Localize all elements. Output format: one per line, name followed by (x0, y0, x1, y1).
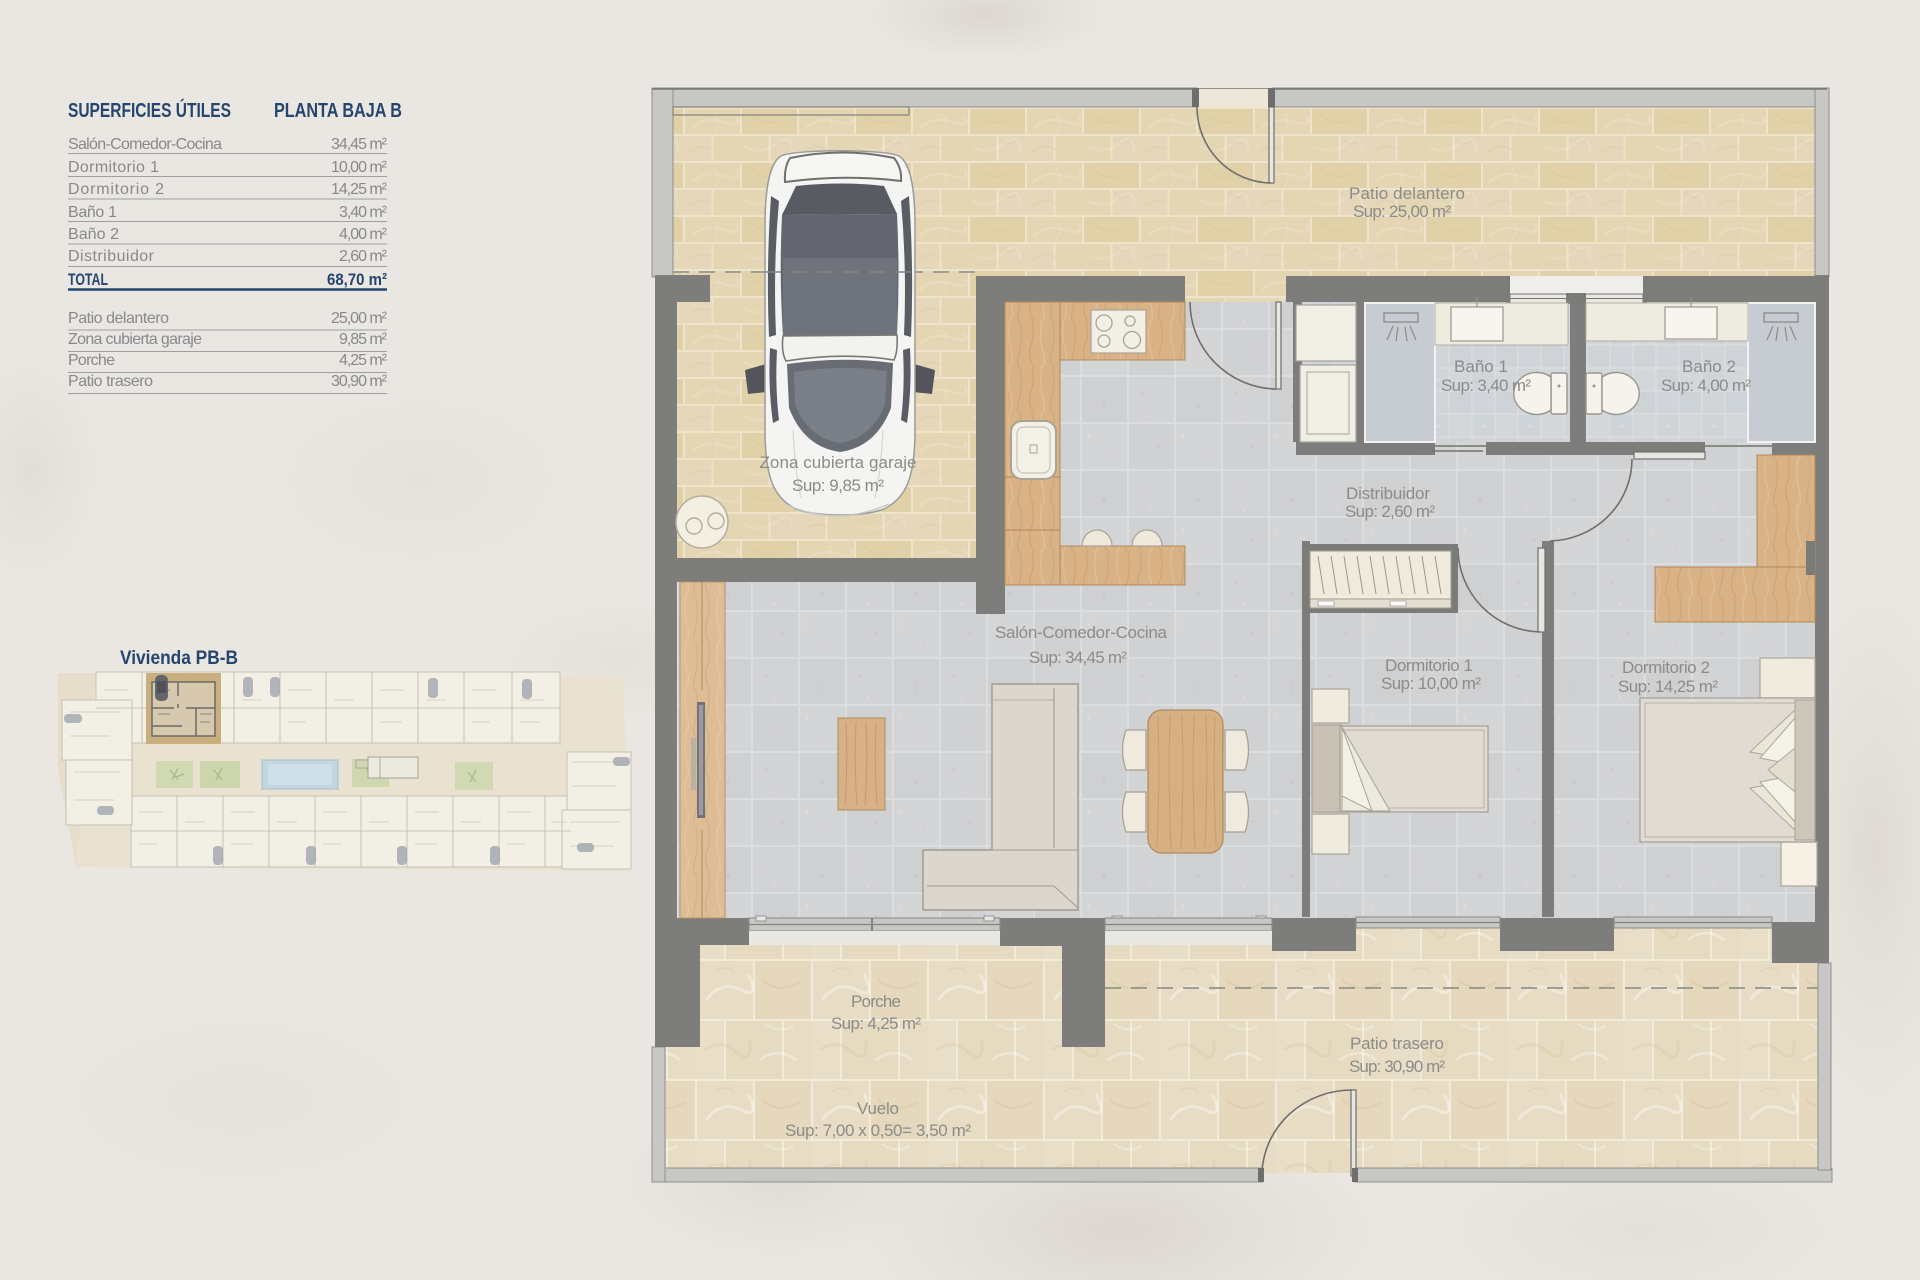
svg-text:9,85 m²: 9,85 m² (339, 331, 388, 348)
svg-text:Patio trasero: Patio trasero (1350, 1034, 1444, 1053)
svg-text:Zona cubierta garaje: Zona cubierta garaje (68, 331, 202, 348)
svg-text:SUPERFICIES ÚTILES: SUPERFICIES ÚTILES (68, 98, 231, 122)
svg-text:10,00 m²: 10,00 m² (331, 159, 388, 176)
svg-text:TOTAL: TOTAL (68, 270, 108, 289)
svg-text:Sup: 7,00 x 0,50= 3,50 m²: Sup: 7,00 x 0,50= 3,50 m² (785, 1121, 971, 1140)
svg-text:4,25 m²: 4,25 m² (339, 352, 388, 369)
svg-text:Dormitorio 1: Dormitorio 1 (68, 159, 159, 176)
svg-text:Sup: 4,25 m²: Sup: 4,25 m² (831, 1014, 921, 1033)
svg-text:14,25 m²: 14,25 m² (331, 181, 388, 198)
svg-text:Porche: Porche (68, 352, 115, 369)
svg-text:Sup: 34,45 m²: Sup: 34,45 m² (1029, 648, 1127, 667)
svg-text:2,60 m²: 2,60 m² (339, 248, 388, 265)
svg-text:Patio trasero: Patio trasero (68, 373, 153, 390)
svg-text:Baño 1: Baño 1 (1454, 357, 1508, 376)
svg-text:Distribuidor: Distribuidor (68, 248, 155, 265)
svg-text:Patio delantero: Patio delantero (68, 310, 169, 327)
svg-text:Baño 2: Baño 2 (68, 226, 119, 243)
svg-text:Distribuidor: Distribuidor (1346, 484, 1430, 503)
svg-text:Sup: 30,90 m²: Sup: 30,90 m² (1349, 1057, 1445, 1076)
svg-text:Sup: 14,25 m²: Sup: 14,25 m² (1618, 677, 1718, 696)
svg-text:4,00 m²: 4,00 m² (339, 226, 388, 243)
svg-text:Patio delantero: Patio delantero (1349, 184, 1465, 203)
svg-text:Baño 2: Baño 2 (1682, 357, 1736, 376)
svg-text:25,00 m²: 25,00 m² (331, 310, 388, 327)
svg-text:Dormitorio 2: Dormitorio 2 (68, 181, 164, 198)
svg-text:Sup: 2,60 m²: Sup: 2,60 m² (1345, 502, 1435, 521)
svg-text:Sup: 10,00 m²: Sup: 10,00 m² (1381, 674, 1481, 693)
svg-text:68,70 m²: 68,70 m² (327, 270, 387, 289)
svg-text:Sup: 25,00 m²: Sup: 25,00 m² (1353, 202, 1451, 221)
svg-text:Zona cubierta garaje: Zona cubierta garaje (760, 453, 917, 472)
svg-text:Salón-Comedor-Cocina: Salón-Comedor-Cocina (68, 136, 222, 153)
svg-text:Vivienda PB-B: Vivienda PB-B (120, 648, 238, 669)
svg-text:Sup: 9,85 m²: Sup: 9,85 m² (792, 476, 884, 495)
svg-text:PLANTA BAJA B: PLANTA BAJA B (274, 100, 402, 122)
svg-text:Porche: Porche (851, 992, 901, 1011)
svg-text:34,45 m²: 34,45 m² (331, 136, 388, 153)
svg-text:3,40 m²: 3,40 m² (339, 204, 388, 221)
svg-text:Sup: 4,00 m²: Sup: 4,00 m² (1661, 376, 1751, 395)
svg-text:Salón-Comedor-Cocina: Salón-Comedor-Cocina (995, 623, 1168, 642)
svg-text:Sup: 3,40 m²: Sup: 3,40 m² (1441, 376, 1531, 395)
svg-text:Vuelo: Vuelo (857, 1099, 899, 1118)
svg-text:Dormitorio 1: Dormitorio 1 (1385, 656, 1473, 675)
svg-text:Baño 1: Baño 1 (68, 204, 117, 221)
svg-text:Dormitorio 2: Dormitorio 2 (1622, 658, 1710, 677)
svg-text:30,90 m²: 30,90 m² (331, 373, 388, 390)
